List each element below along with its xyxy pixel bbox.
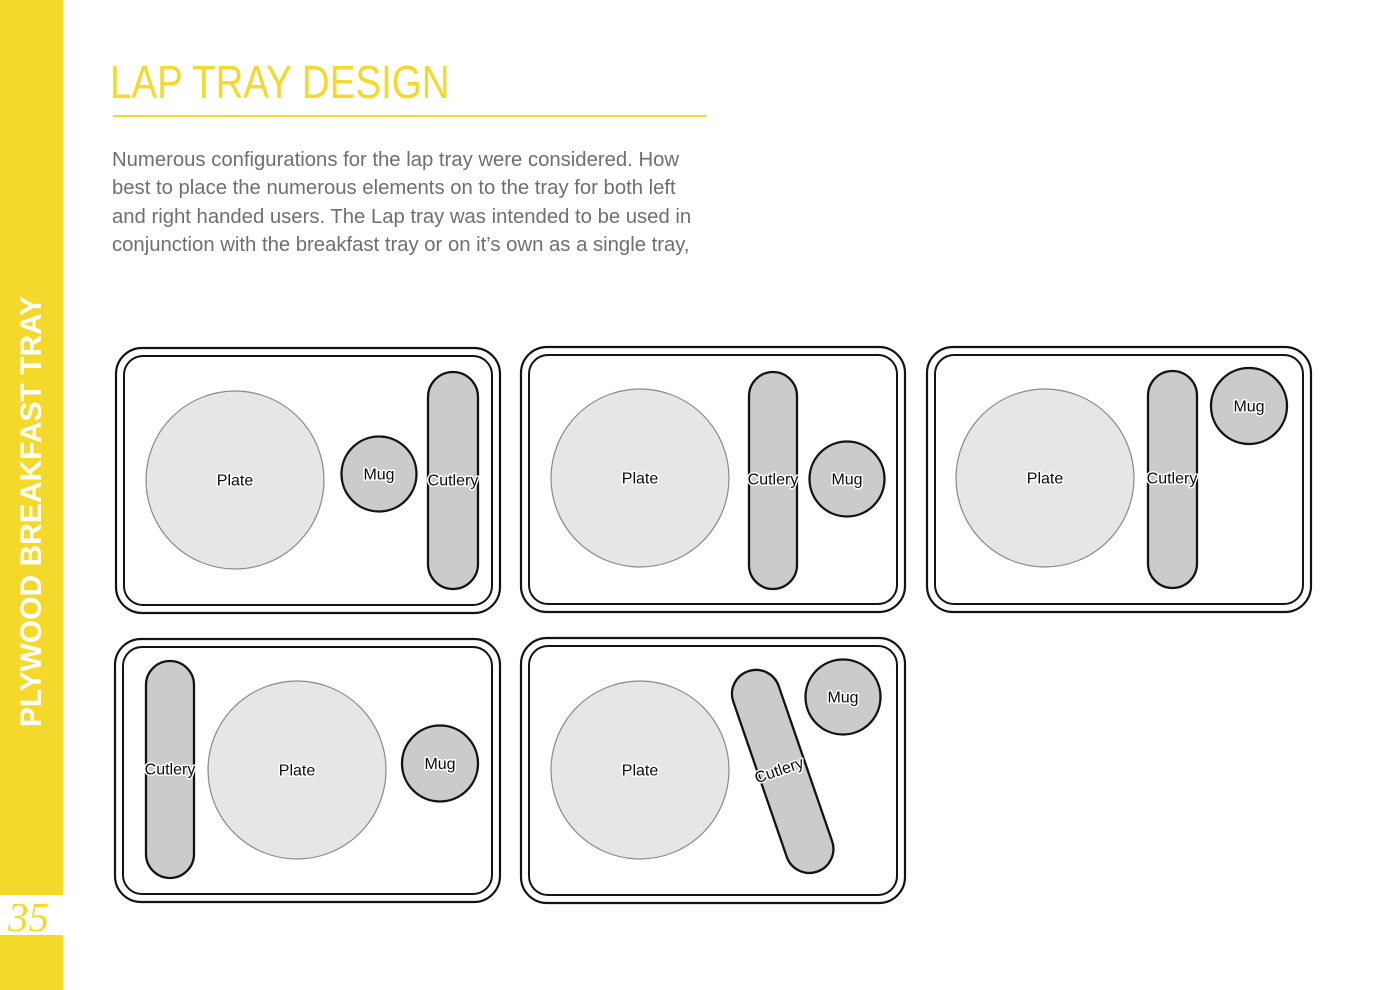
svg-text:Plate: Plate bbox=[622, 763, 659, 780]
svg-text:Plate: Plate bbox=[1027, 471, 1064, 488]
svg-text:Cutlery: Cutlery bbox=[1147, 471, 1198, 488]
svg-text:Mug: Mug bbox=[363, 467, 394, 484]
svg-text:Cutlery: Cutlery bbox=[145, 762, 196, 779]
svg-text:Mug: Mug bbox=[831, 472, 862, 489]
svg-text:Plate: Plate bbox=[279, 763, 316, 780]
svg-text:Plate: Plate bbox=[217, 473, 254, 490]
svg-text:Cutlery: Cutlery bbox=[428, 473, 479, 490]
svg-text:Cutlery: Cutlery bbox=[748, 472, 799, 489]
svg-text:Mug: Mug bbox=[424, 756, 455, 773]
svg-text:Mug: Mug bbox=[1233, 399, 1264, 416]
svg-text:Mug: Mug bbox=[827, 690, 858, 707]
svg-text:Plate: Plate bbox=[622, 471, 659, 488]
